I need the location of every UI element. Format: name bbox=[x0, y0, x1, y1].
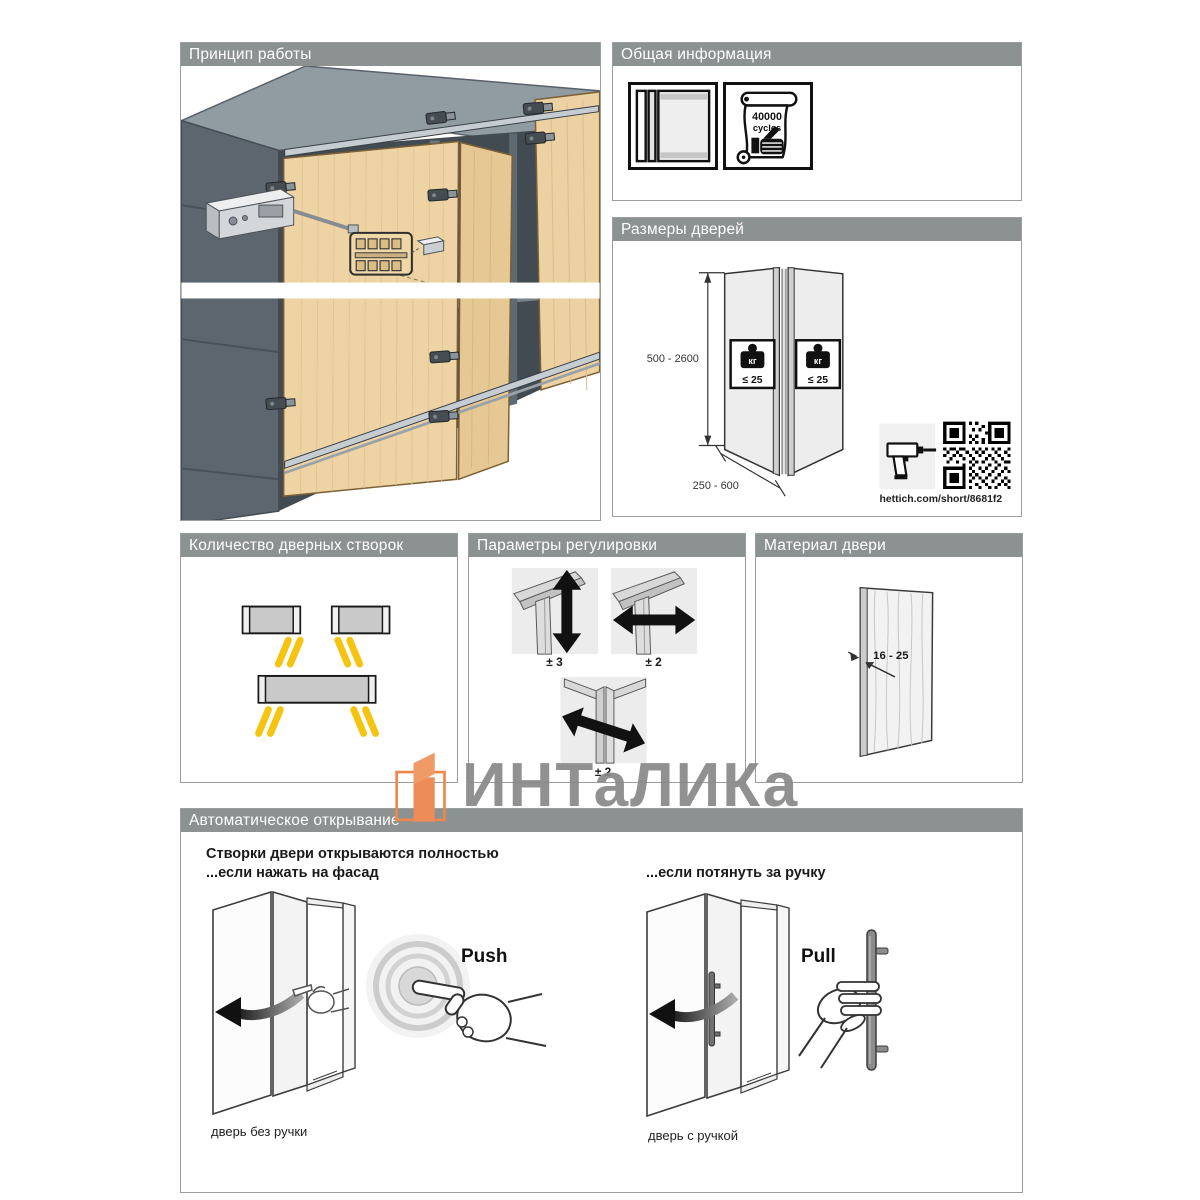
qr-code bbox=[943, 422, 1011, 490]
weight-unit: кг bbox=[814, 356, 822, 366]
cabinet-illustration bbox=[181, 66, 600, 520]
door-dimensions-diagram: кг ≤ 25 кг ≤ 25 500 bbox=[613, 241, 1021, 516]
folding-doors bbox=[284, 142, 512, 497]
adjustment-diagram: ± 3 ± 2 ± 2 bbox=[469, 557, 745, 782]
door-unit-wide bbox=[259, 676, 376, 703]
weight-limit: ≤ 25 bbox=[808, 375, 828, 386]
panel-auto-opening: Автоматическое открывание Створки двери … bbox=[180, 808, 1023, 1193]
door-material-diagram: 16 - 25 bbox=[756, 557, 1022, 782]
test-cycles-icon: 40000 cycles bbox=[723, 82, 813, 170]
caption-no-handle: дверь без ручки bbox=[211, 1124, 307, 1139]
horizontal-adjust-figure bbox=[611, 568, 697, 654]
panel-adjustment: Параметры регулировки bbox=[468, 533, 746, 783]
panel-title: Параметры регулировки bbox=[469, 534, 745, 557]
pull-label: Pull bbox=[801, 946, 836, 967]
weight-badge: кг ≤ 25 bbox=[731, 340, 775, 388]
push-intro-line1: Створки двери открываются полностью bbox=[206, 846, 499, 862]
push-label: Push bbox=[461, 946, 507, 967]
panel-title: Принцип работы bbox=[181, 43, 600, 66]
pull-graphic: Pull bbox=[779, 924, 919, 1086]
depth-adjust-figure bbox=[557, 677, 649, 763]
door-unit bbox=[243, 607, 300, 634]
panel-title: Размеры дверей bbox=[613, 218, 1021, 241]
cycles-value: 40000 bbox=[752, 111, 782, 123]
mounting-plate bbox=[350, 233, 412, 275]
weight-badge: кг ≤ 25 bbox=[796, 340, 840, 388]
panel-title: Автоматическое открывание bbox=[181, 809, 1022, 832]
qr-link-text: hettich.com/short/8681f2 bbox=[880, 494, 1003, 505]
panel-door-material: Материал двери bbox=[755, 533, 1023, 783]
vertical-adjust-figure bbox=[512, 568, 598, 654]
panel-title: Общая информация bbox=[613, 43, 1021, 66]
folding-door-icon bbox=[628, 82, 718, 170]
vertical-adjust-value: ± 3 bbox=[546, 655, 563, 669]
panel-door-count: Количество дверных створок bbox=[180, 533, 458, 783]
material-door bbox=[860, 588, 932, 757]
pull-cabinet-illustration bbox=[643, 892, 793, 1120]
push-intro-line2: ...если нажать на фасад bbox=[206, 865, 379, 881]
panel-door-sizes: Размеры дверей кг ≤ 25 bbox=[612, 217, 1022, 517]
panel-title: Количество дверных створок bbox=[181, 534, 457, 557]
depth-adjust-value: ± 2 bbox=[595, 765, 612, 779]
drill-icon bbox=[880, 424, 937, 490]
weight-limit: ≤ 25 bbox=[742, 375, 762, 386]
caption-with-handle: дверь с ручкой bbox=[648, 1128, 738, 1143]
pull-intro: ...если потянуть за ручку bbox=[646, 865, 826, 881]
opening-marks bbox=[259, 710, 376, 734]
door-width-range: 250 - 600 bbox=[693, 480, 739, 492]
horizontal-adjust-value: ± 2 bbox=[645, 655, 662, 669]
panel-title: Материал двери bbox=[756, 534, 1022, 557]
panel-working-principle: Принцип работы bbox=[180, 42, 601, 521]
push-graphic: Push bbox=[356, 924, 566, 1099]
door-count-diagram bbox=[181, 557, 457, 782]
cabinet-side bbox=[181, 121, 278, 520]
panel-general-info: Общая информация 40000 bbox=[612, 42, 1022, 201]
document-page: Принцип работы bbox=[0, 0, 1200, 1200]
door-height-range: 500 - 2600 bbox=[647, 353, 699, 365]
thickness-value: 16 - 25 bbox=[873, 650, 909, 662]
opening-marks bbox=[278, 640, 359, 664]
weight-unit: кг bbox=[748, 356, 756, 366]
push-cabinet-illustration bbox=[209, 890, 359, 1118]
page-split-band bbox=[181, 283, 599, 299]
height-dimension bbox=[699, 273, 725, 446]
door-unit bbox=[332, 607, 389, 634]
